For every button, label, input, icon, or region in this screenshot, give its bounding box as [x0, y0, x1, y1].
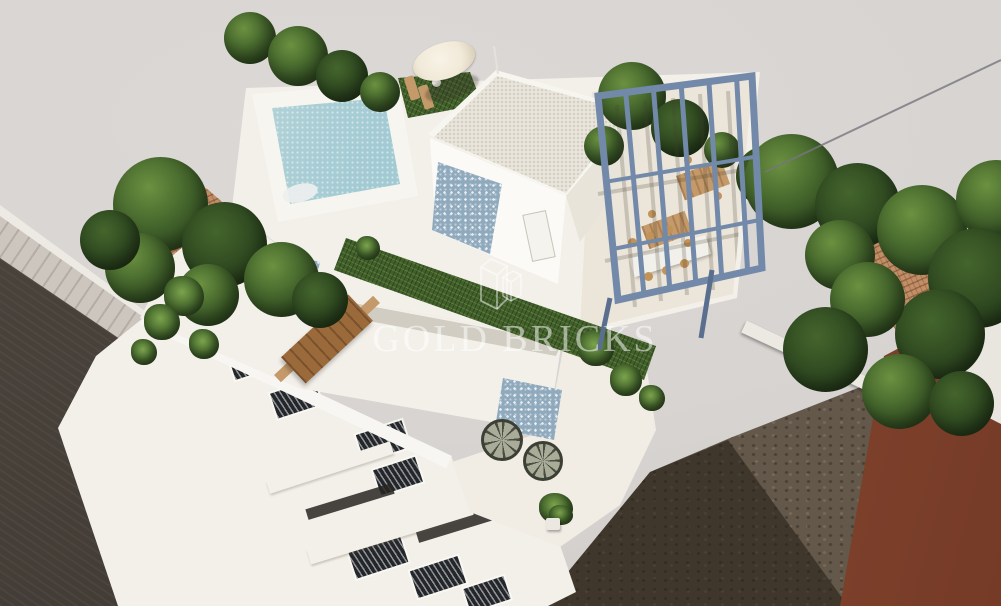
dining-chair	[628, 238, 637, 247]
shrub	[144, 304, 180, 340]
tree	[360, 72, 400, 112]
tree	[783, 307, 868, 392]
pergola-chair	[684, 239, 692, 247]
render-canvas: GOLD BRICKS	[0, 0, 1001, 606]
shrub	[610, 364, 642, 396]
dining-chair	[644, 272, 653, 281]
dining-chair	[664, 225, 673, 234]
tree	[80, 210, 140, 270]
tree	[651, 99, 709, 157]
tree	[292, 272, 348, 328]
shrub	[356, 236, 380, 260]
pergola-chair	[684, 156, 692, 164]
shrub	[189, 329, 219, 359]
wicker-lounge-chair	[523, 441, 563, 481]
dining-chair	[646, 232, 655, 241]
watermark-text: GOLD BRICKS	[350, 320, 680, 358]
dining-chair	[680, 259, 689, 268]
tree	[862, 354, 937, 429]
tree	[929, 371, 994, 436]
dining-chair	[662, 266, 671, 275]
pergola-chair	[648, 210, 656, 218]
tree	[584, 126, 624, 166]
tree	[704, 132, 740, 168]
wicker-lounge-chair	[481, 419, 523, 461]
gold-bricks-logo	[477, 249, 523, 313]
shrub	[639, 385, 665, 411]
planter-pot	[546, 518, 560, 530]
shrub	[131, 339, 157, 365]
pergola-chair	[714, 192, 722, 200]
